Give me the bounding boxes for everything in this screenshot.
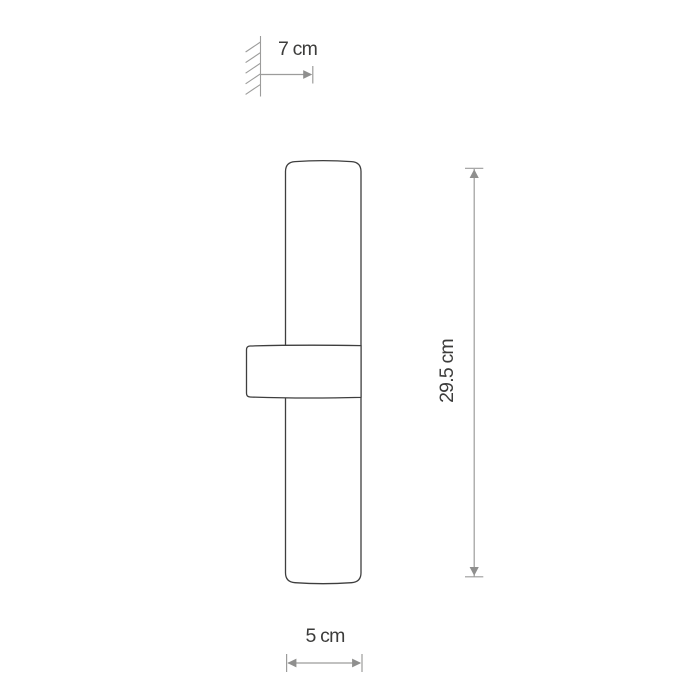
svg-text:29.5 cm: 29.5 cm xyxy=(436,339,458,403)
svg-text:7 cm: 7 cm xyxy=(278,38,317,60)
svg-text:5 cm: 5 cm xyxy=(305,625,344,647)
